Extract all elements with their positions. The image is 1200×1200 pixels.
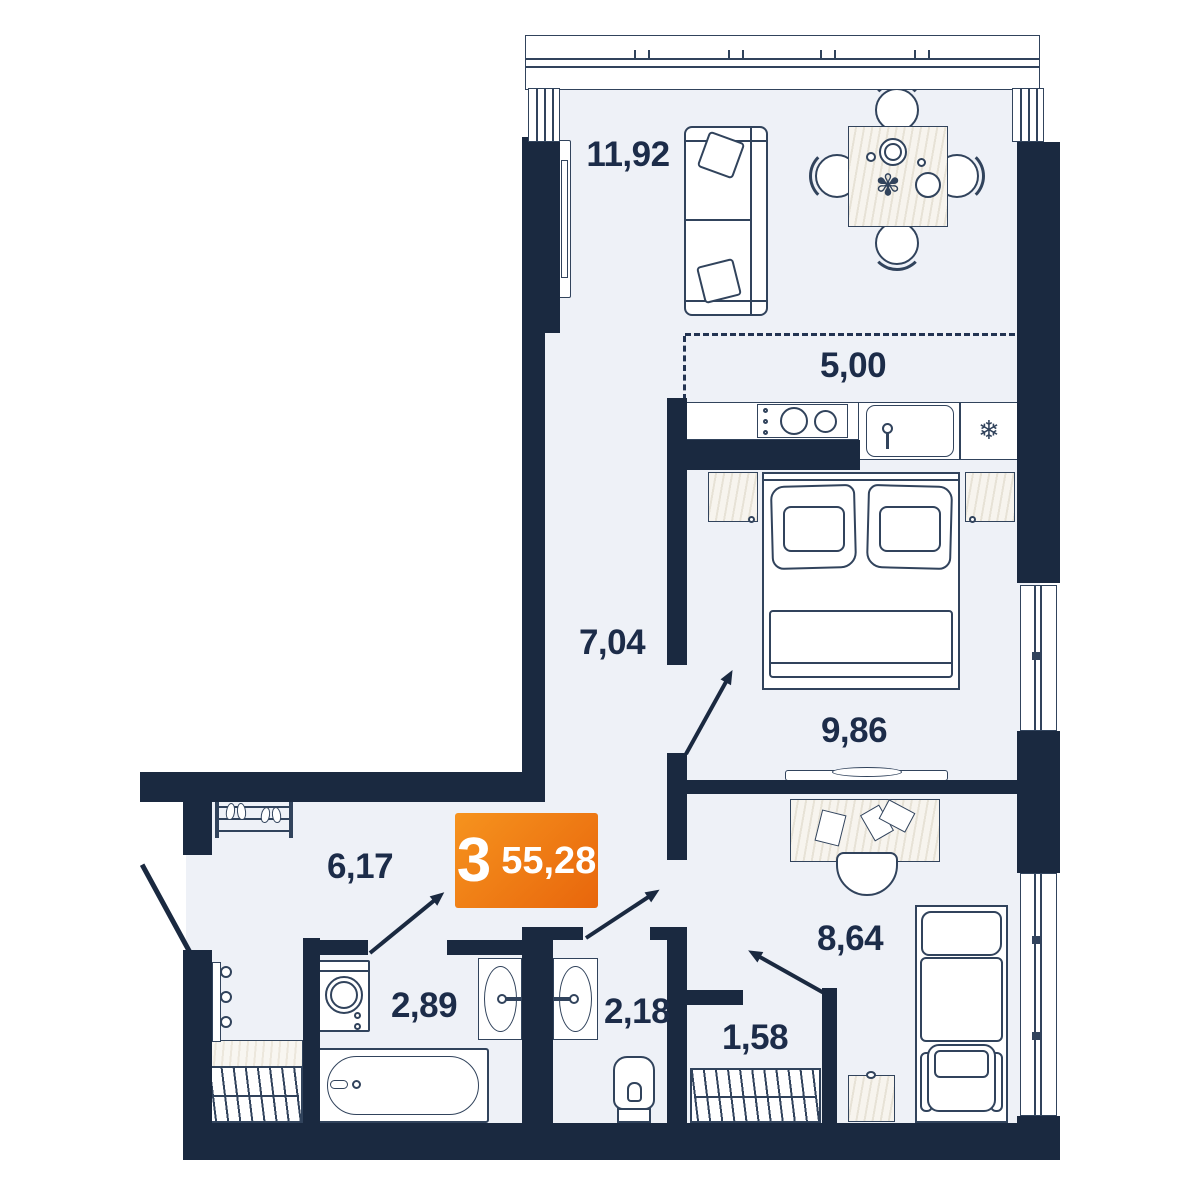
bathtub-basin	[327, 1056, 479, 1115]
window-latch	[1032, 652, 1042, 660]
bathtub-faucet	[330, 1080, 348, 1089]
room-label-hall: 7,04	[579, 623, 645, 663]
wall-hall-bedroom2	[667, 753, 687, 860]
hob-burner-small	[814, 410, 837, 433]
nightstand-knob	[748, 516, 755, 523]
window-mullion-tick	[634, 50, 636, 59]
hob-burner-large	[780, 407, 808, 435]
bed-headboard-line	[764, 479, 958, 481]
room-label-kitchen: 5,00	[820, 346, 886, 386]
glazing-line	[1028, 89, 1030, 141]
bedside-box-handle	[866, 1071, 876, 1079]
toilet-tank	[617, 1108, 651, 1123]
badge-rooms-count: 3	[457, 830, 491, 892]
window-mullion-tick	[742, 50, 744, 59]
glazing-line	[1034, 874, 1036, 1115]
nightstand-right	[965, 472, 1015, 522]
floor-entry-door-gap	[186, 855, 212, 950]
nightstand-left	[708, 472, 758, 522]
single-bed-sheet	[920, 957, 1003, 1042]
window-mullion-tick	[648, 50, 650, 59]
coat-hook	[220, 991, 232, 1003]
washing-machine-button	[354, 1012, 361, 1019]
apartment-badge: 3 55,28	[455, 813, 598, 908]
wall-closet-top	[687, 990, 743, 1005]
wall-bathroom-left	[303, 938, 320, 1123]
wall-shelf-lens	[832, 767, 902, 777]
wall-closet-right	[822, 1007, 837, 1123]
wall-under-counter	[667, 440, 860, 470]
toilet-bowl	[627, 1082, 642, 1102]
wall-entry-left-upper	[183, 802, 212, 855]
wall-living-left	[522, 137, 560, 333]
wall-right-top	[1017, 142, 1060, 583]
tv-screen	[561, 160, 568, 278]
plate-inner	[884, 143, 902, 161]
wall-bathroom-top-left	[303, 940, 368, 955]
window-mullion-tick	[914, 50, 916, 59]
single-bed-pillow	[921, 911, 1002, 956]
closet-hanger-rail	[690, 1068, 821, 1123]
wall-entry-left-lower	[183, 950, 212, 1123]
window-frame-line	[526, 66, 1039, 68]
wall-entry-top	[140, 772, 545, 802]
room-label-bathroom: 2,89	[391, 986, 457, 1026]
floor-plan: ✾ ❄	[0, 0, 1200, 1200]
coat-hook	[220, 966, 232, 978]
glazing-line	[544, 89, 546, 141]
wall-bathroom-top-right	[447, 940, 522, 955]
wall-kitchen-hall	[667, 398, 687, 665]
chair-seat	[875, 221, 919, 265]
glazing-line	[1020, 89, 1022, 141]
room-label-closet: 1,58	[722, 1018, 788, 1058]
room-label-wc: 2,18	[604, 992, 670, 1032]
entry-door-leaf	[140, 864, 192, 954]
cup	[866, 152, 876, 162]
shoe-rack-rail	[219, 830, 289, 832]
window-frame-line	[526, 58, 1039, 60]
window-latch	[1032, 1032, 1042, 1040]
snowflake-icon: ❄	[978, 416, 1000, 446]
wall-bottom	[183, 1123, 1060, 1160]
wall-right-middle	[1017, 731, 1060, 873]
kitchen-zone-dashed-line-vertical	[683, 336, 686, 400]
window-living-side-right	[1012, 88, 1044, 142]
single-bed-duvet-fold	[934, 1050, 989, 1078]
window-mullion-tick	[928, 50, 930, 59]
hob-knob	[763, 419, 768, 424]
sofa-backrest-line	[750, 128, 752, 314]
room-label-bedroom-main: 9,86	[821, 711, 887, 751]
nightstand-knob	[969, 516, 976, 523]
glazing-line	[1036, 89, 1038, 141]
cup-2	[917, 158, 926, 167]
sofa-seat-divider	[686, 219, 752, 221]
plant-icon: ✾	[875, 169, 900, 204]
kitchen-zone-dashed-line	[685, 333, 1033, 336]
entry-wardrobe-shelf	[208, 1040, 303, 1068]
wc-sink-faucet-base	[569, 994, 579, 1004]
room-label-bedroom-second: 8,64	[817, 919, 883, 959]
wall-hall-left	[522, 333, 545, 802]
bedside-box	[848, 1075, 895, 1122]
wall-wc-top-corner	[650, 927, 667, 940]
bed-blanket	[769, 610, 953, 678]
hob-knob	[763, 430, 768, 435]
washing-machine-button	[354, 1023, 361, 1030]
bed-blanket-fold-line	[771, 662, 951, 664]
window-mullion-tick	[728, 50, 730, 59]
entry-hanger-rail	[208, 1066, 303, 1123]
wall-bedroom-divider	[667, 780, 1060, 794]
kitchen-sink	[866, 405, 954, 457]
wall-bathroom-wc	[522, 927, 553, 1123]
window-latch	[1032, 936, 1042, 944]
window-mullion-tick	[834, 50, 836, 59]
coat-hook	[220, 1016, 232, 1028]
sofa-armrest-line-bottom	[686, 300, 766, 302]
glazing-line	[536, 89, 538, 141]
window-mullion-tick	[820, 50, 822, 59]
window-living-side-left	[528, 88, 560, 142]
glazing-line	[552, 89, 554, 141]
window-bedroom-main	[1020, 585, 1057, 731]
kitchen-sink-handle	[886, 432, 889, 449]
window-living-top	[525, 35, 1040, 90]
plate-2	[915, 172, 941, 198]
badge-total-area: 55,28	[501, 842, 596, 880]
window-bedroom-second	[1020, 873, 1057, 1116]
wall-right-bottom	[1017, 1116, 1060, 1160]
bathtub-drain	[352, 1080, 361, 1089]
washing-machine-panel-line	[320, 970, 368, 972]
room-label-entry: 6,17	[327, 847, 393, 887]
glazing-line	[1040, 874, 1042, 1115]
washing-machine-drum-inner	[330, 981, 358, 1009]
shoe-rack-post-right	[289, 800, 293, 838]
bathroom-sink-faucet-base	[497, 994, 507, 1004]
bed-pillow-left-inner	[783, 506, 845, 552]
room-label-living: 11,92	[586, 135, 669, 175]
wall-wc-top-stub	[553, 927, 583, 940]
hob-knob	[763, 408, 768, 413]
bed-pillow-right-inner	[879, 506, 941, 552]
